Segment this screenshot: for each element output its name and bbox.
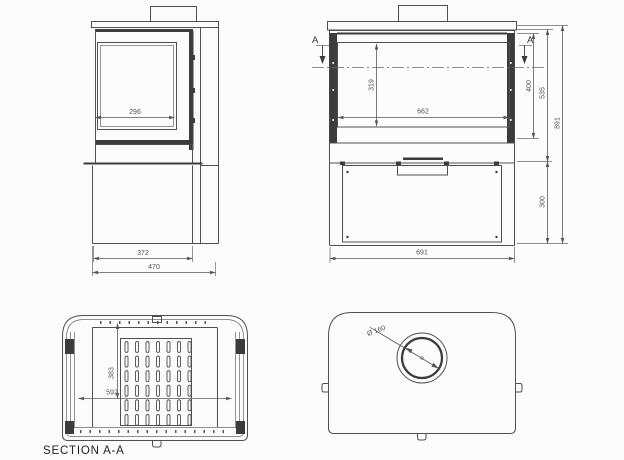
top-left-lug [322, 384, 329, 393]
section-arrow-left [320, 56, 326, 64]
top-right-lug [516, 384, 523, 393]
side-top-plate [92, 22, 219, 28]
grate-slots [125, 341, 192, 426]
side-flue-collar [151, 7, 197, 22]
front-handle [403, 158, 443, 161]
side-view: 296 372 470 [84, 7, 219, 277]
side-window-outer [98, 43, 177, 130]
front-dim-691: 691 [416, 250, 428, 257]
front-view: A A 319 662 691 [312, 6, 568, 264]
front-dim-400: 400 [526, 80, 533, 92]
section-bottom-leg [153, 441, 162, 448]
section-dim-592: 592 [106, 390, 118, 397]
technical-drawing-page: 296 372 470 A A 319 [0, 0, 624, 460]
front-dim-300: 300 [540, 196, 547, 208]
front-dim-891: 891 [555, 117, 562, 129]
side-dim-372: 372 [137, 250, 149, 257]
top-body-outline [329, 313, 516, 434]
front-left-frame [330, 33, 338, 143]
front-firebox-body [330, 31, 515, 144]
section-dim-383: 383 [109, 367, 116, 379]
section-marker-left: A [312, 35, 319, 46]
top-view: Ø 160 [322, 313, 522, 441]
front-log-store-screws [346, 171, 497, 238]
front-dim-319: 319 [369, 79, 376, 91]
flue-arrow-lower [431, 363, 438, 369]
side-door-bottom-edge [95, 140, 193, 145]
section-cut-markers: A A [312, 35, 534, 64]
section-caption: SECTION A-A [43, 445, 125, 457]
front-dim-535: 535 [540, 87, 547, 99]
front-log-store [343, 166, 502, 243]
side-dim-470: 470 [148, 264, 160, 271]
side-rear-panel [201, 28, 219, 244]
top-rear-leg [418, 434, 427, 441]
side-ext-lines [93, 246, 216, 276]
front-dim-662: 662 [417, 109, 429, 116]
front-log-store-notch [398, 166, 448, 176]
section-arrow-right [522, 56, 528, 64]
side-base-box [96, 145, 193, 164]
side-pedestal [93, 166, 219, 244]
section-view: 383 592 SECTION A-A [43, 316, 248, 458]
section-marker-right: A [527, 35, 534, 46]
side-dim-296: 296 [129, 109, 141, 116]
front-top-plate [328, 22, 517, 31]
stove-drawing-svg: 296 372 470 A A 319 [0, 0, 624, 460]
side-door-top-edge [95, 29, 193, 32]
front-flue-collar [399, 6, 448, 22]
